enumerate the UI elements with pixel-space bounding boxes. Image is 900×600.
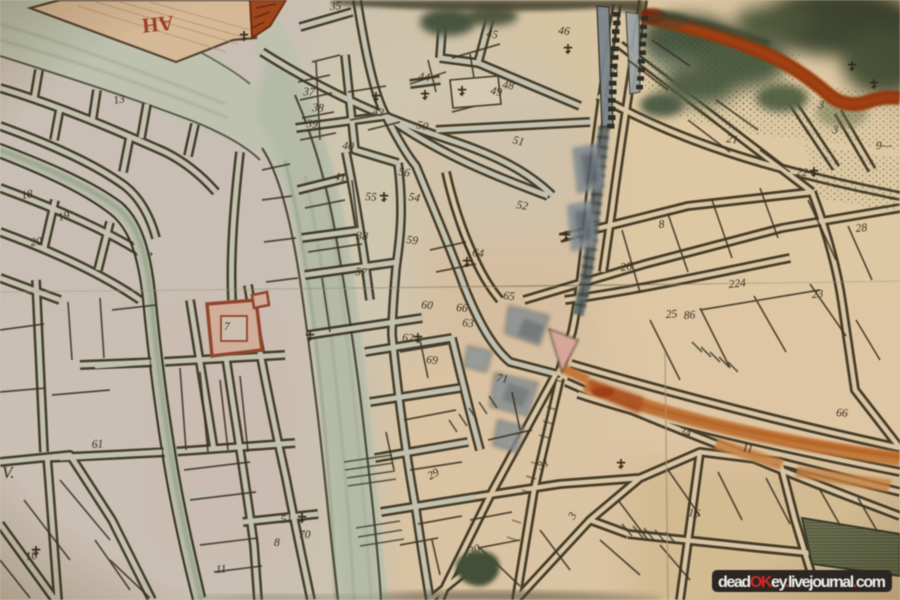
svg-text:deadOKey.livejournal.com: deadOKey.livejournal.com [718,574,886,591]
